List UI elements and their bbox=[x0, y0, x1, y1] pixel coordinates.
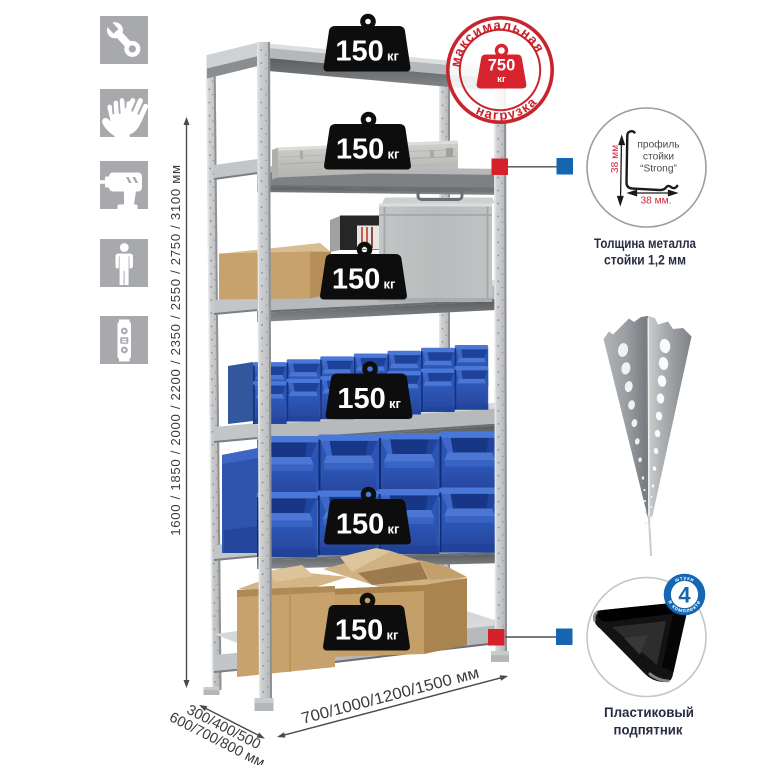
svg-text:150: 150 bbox=[332, 264, 380, 296]
svg-text:38 мм: 38 мм bbox=[610, 145, 621, 173]
svg-text:кг: кг bbox=[389, 396, 402, 411]
svg-text:кг: кг bbox=[388, 522, 401, 537]
svg-text:1600 / 1850 / 2000 / 2200 / 23: 1600 / 1850 / 2000 / 2200 / 2350 / 2550 … bbox=[168, 164, 183, 536]
svg-text:150: 150 bbox=[336, 509, 384, 541]
svg-text:“Strong”: “Strong” bbox=[640, 164, 677, 175]
svg-text:стойки 1,2 мм: стойки 1,2 мм bbox=[604, 253, 686, 268]
svg-text:750: 750 bbox=[488, 57, 516, 75]
svg-text:кг: кг bbox=[387, 628, 400, 643]
svg-text:150: 150 bbox=[335, 36, 383, 68]
svg-text:Пластиковый: Пластиковый bbox=[604, 705, 694, 720]
svg-text:кг: кг bbox=[384, 277, 397, 292]
svg-text:4: 4 bbox=[678, 583, 691, 608]
svg-text:стойки: стойки bbox=[643, 152, 674, 163]
svg-text:кг: кг bbox=[388, 147, 401, 162]
svg-text:Толщина металла: Толщина металла bbox=[594, 236, 696, 251]
svg-text:профиль: профиль bbox=[637, 139, 679, 151]
svg-text:кг: кг bbox=[497, 74, 506, 85]
svg-text:150: 150 bbox=[335, 615, 383, 647]
svg-text:150: 150 bbox=[336, 134, 384, 166]
svg-text:кг: кг bbox=[387, 49, 400, 64]
svg-text:150: 150 bbox=[337, 383, 385, 415]
svg-text:подпятник: подпятник bbox=[614, 723, 683, 738]
svg-text:38 мм.: 38 мм. bbox=[640, 196, 671, 207]
